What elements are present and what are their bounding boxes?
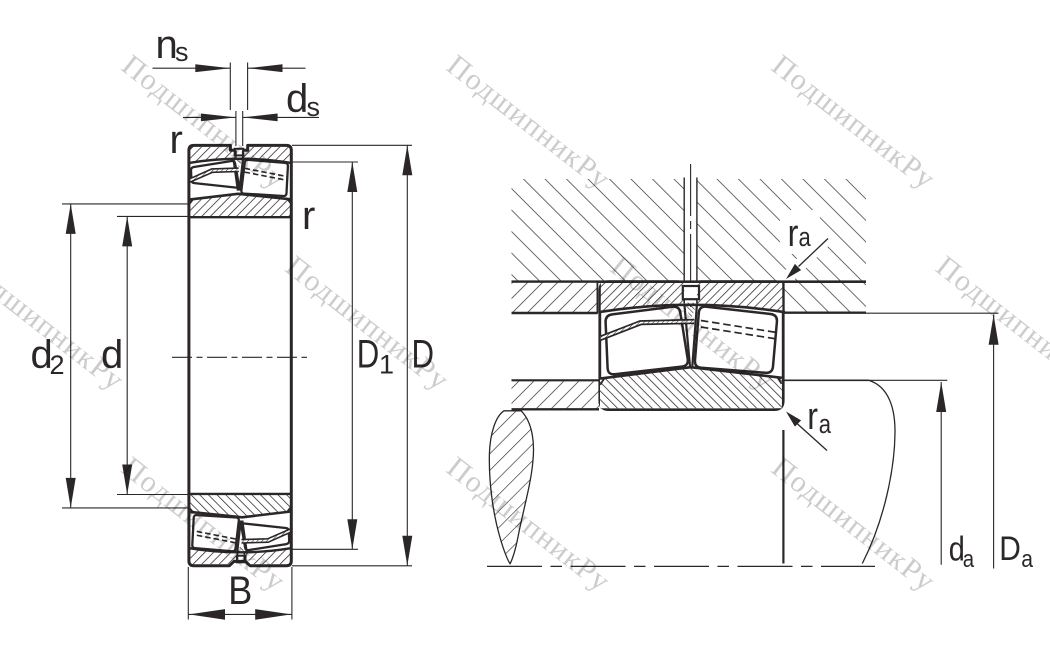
svg-text:s: s [175,37,189,67]
svg-text:d: d [286,77,308,121]
svg-text:a: a [1021,546,1033,573]
svg-text:a: a [819,410,832,439]
svg-text:D: D [999,529,1021,567]
svg-text:r: r [788,213,799,255]
svg-text:a: a [799,223,812,252]
svg-text:r: r [302,194,315,238]
svg-text:a: a [963,545,975,572]
svg-text:r: r [807,396,818,438]
svg-text:s: s [307,92,321,122]
